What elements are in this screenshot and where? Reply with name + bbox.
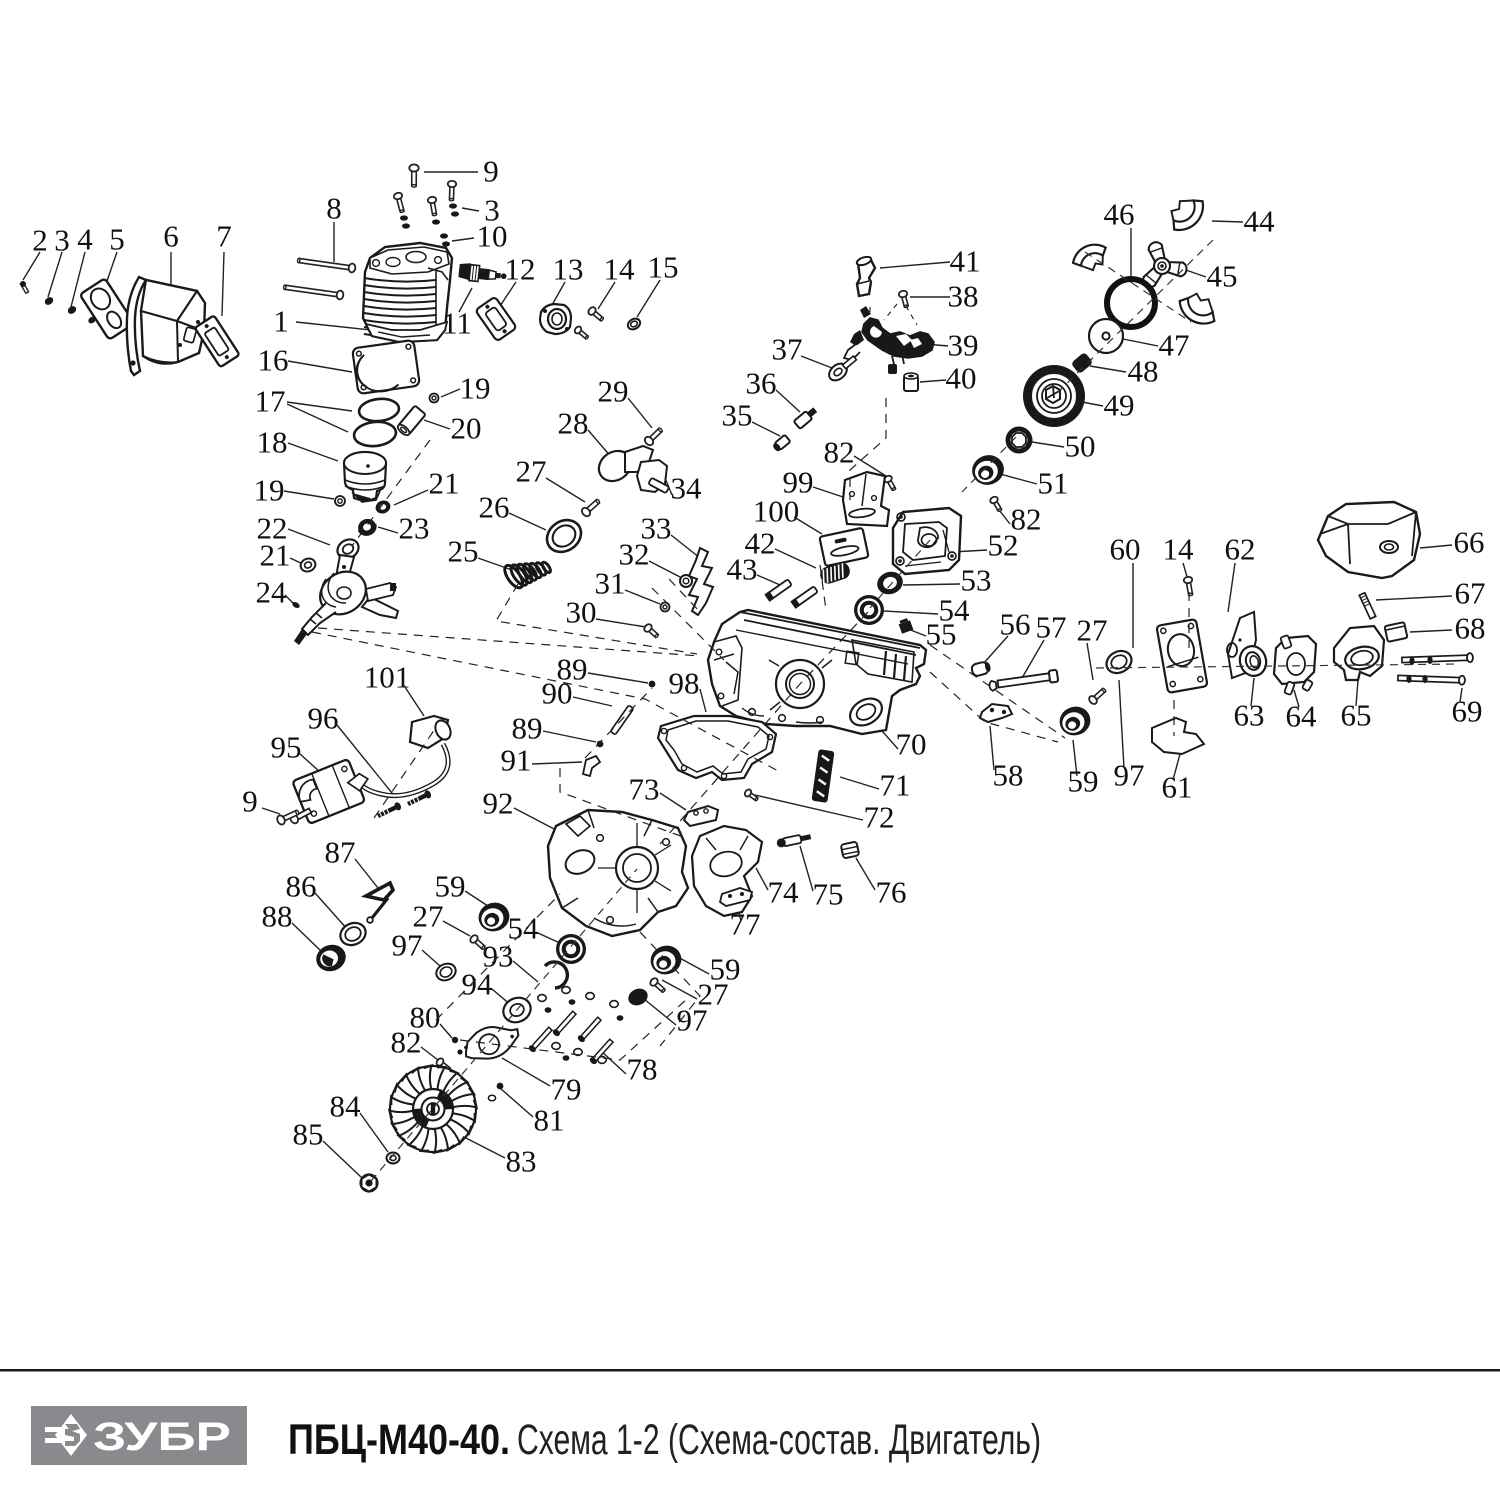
svg-text:ПБЦ-М40-40.: ПБЦ-М40-40. bbox=[288, 1416, 510, 1464]
svg-text:69: 69 bbox=[1452, 694, 1483, 729]
svg-text:15: 15 bbox=[648, 250, 679, 285]
svg-text:7: 7 bbox=[216, 219, 232, 254]
svg-text:68: 68 bbox=[1455, 611, 1486, 646]
svg-text:75: 75 bbox=[813, 877, 844, 912]
svg-text:88: 88 bbox=[262, 899, 293, 934]
svg-text:25: 25 bbox=[448, 534, 479, 569]
svg-text:6: 6 bbox=[163, 219, 179, 254]
svg-text:48: 48 bbox=[1128, 354, 1159, 389]
svg-text:4: 4 bbox=[77, 222, 93, 257]
svg-text:35: 35 bbox=[722, 398, 753, 433]
svg-text:47: 47 bbox=[1159, 328, 1190, 363]
svg-text:64: 64 bbox=[1286, 699, 1318, 734]
svg-text:36: 36 bbox=[746, 366, 777, 401]
svg-text:81: 81 bbox=[534, 1103, 565, 1138]
svg-text:60: 60 bbox=[1110, 532, 1141, 567]
svg-text:84: 84 bbox=[330, 1089, 362, 1124]
svg-text:95: 95 bbox=[271, 730, 302, 765]
svg-text:90: 90 bbox=[542, 676, 573, 711]
svg-text:61: 61 bbox=[1162, 770, 1193, 805]
svg-text:85: 85 bbox=[293, 1117, 324, 1152]
svg-text:82: 82 bbox=[824, 435, 855, 470]
svg-text:26: 26 bbox=[479, 490, 510, 525]
svg-text:82: 82 bbox=[391, 1025, 422, 1060]
svg-text:92: 92 bbox=[483, 786, 514, 821]
svg-text:96: 96 bbox=[308, 701, 339, 736]
svg-text:12: 12 bbox=[505, 252, 536, 287]
svg-text:17: 17 bbox=[255, 384, 286, 419]
svg-text:41: 41 bbox=[950, 244, 981, 279]
svg-text:31: 31 bbox=[595, 566, 626, 601]
svg-text:72: 72 bbox=[864, 800, 895, 835]
svg-text:78: 78 bbox=[627, 1052, 658, 1087]
svg-text:ЗУБР: ЗУБР bbox=[93, 1415, 231, 1459]
svg-text:49: 49 bbox=[1104, 388, 1135, 423]
svg-text:98: 98 bbox=[669, 666, 700, 701]
svg-text:52: 52 bbox=[988, 528, 1019, 563]
svg-text:94: 94 bbox=[462, 967, 494, 1002]
svg-text:20: 20 bbox=[451, 411, 482, 446]
svg-text:62: 62 bbox=[1225, 532, 1256, 567]
svg-text:14: 14 bbox=[604, 252, 636, 287]
svg-text:63: 63 bbox=[1234, 698, 1265, 733]
svg-text:10: 10 bbox=[477, 219, 508, 254]
svg-text:Схема 1-2 (Схема-состав. Двига: Схема 1-2 (Схема-состав. Двигатель) bbox=[517, 1416, 1041, 1464]
svg-text:37: 37 bbox=[772, 332, 803, 367]
svg-text:45: 45 bbox=[1207, 259, 1238, 294]
svg-text:24: 24 bbox=[256, 575, 288, 610]
svg-text:43: 43 bbox=[727, 552, 758, 587]
svg-text:40: 40 bbox=[946, 361, 977, 396]
svg-text:101: 101 bbox=[364, 660, 411, 695]
svg-text:83: 83 bbox=[506, 1144, 537, 1179]
svg-text:21: 21 bbox=[260, 538, 291, 573]
svg-text:27: 27 bbox=[516, 454, 547, 489]
svg-text:79: 79 bbox=[551, 1072, 582, 1107]
svg-text:34: 34 bbox=[671, 471, 703, 506]
svg-text:56: 56 bbox=[1000, 607, 1031, 642]
svg-text:21: 21 bbox=[429, 466, 460, 501]
svg-text:70: 70 bbox=[896, 727, 927, 762]
svg-text:97: 97 bbox=[392, 928, 423, 963]
svg-text:73: 73 bbox=[629, 772, 660, 807]
svg-text:16: 16 bbox=[258, 343, 289, 378]
svg-text:27: 27 bbox=[1077, 613, 1108, 648]
svg-text:91: 91 bbox=[501, 743, 532, 778]
svg-text:14: 14 bbox=[1163, 532, 1195, 567]
svg-text:76: 76 bbox=[876, 875, 907, 910]
svg-text:3: 3 bbox=[54, 223, 70, 258]
svg-text:58: 58 bbox=[993, 758, 1024, 793]
svg-text:1: 1 bbox=[273, 304, 289, 339]
svg-text:38: 38 bbox=[948, 279, 979, 314]
svg-text:13: 13 bbox=[553, 252, 584, 287]
svg-text:87: 87 bbox=[325, 835, 356, 870]
svg-text:50: 50 bbox=[1065, 429, 1096, 464]
svg-text:5: 5 bbox=[109, 222, 125, 257]
svg-text:28: 28 bbox=[558, 406, 589, 441]
svg-text:18: 18 bbox=[257, 425, 288, 460]
svg-text:97: 97 bbox=[1114, 758, 1145, 793]
svg-text:23: 23 bbox=[399, 511, 430, 546]
svg-text:29: 29 bbox=[598, 374, 629, 409]
svg-text:9: 9 bbox=[242, 784, 258, 819]
svg-text:100: 100 bbox=[753, 494, 800, 529]
svg-text:51: 51 bbox=[1038, 466, 1069, 501]
svg-text:9: 9 bbox=[483, 154, 499, 189]
svg-text:8: 8 bbox=[326, 191, 342, 226]
svg-text:2: 2 bbox=[32, 223, 48, 258]
svg-text:74: 74 bbox=[768, 875, 800, 910]
svg-text:71: 71 bbox=[880, 768, 911, 803]
svg-text:19: 19 bbox=[460, 371, 491, 406]
svg-text:44: 44 bbox=[1244, 204, 1276, 239]
svg-text:89: 89 bbox=[512, 711, 543, 746]
svg-text:67: 67 bbox=[1455, 576, 1486, 611]
svg-text:57: 57 bbox=[1036, 610, 1067, 645]
svg-text:30: 30 bbox=[566, 595, 597, 630]
svg-text:59: 59 bbox=[1068, 764, 1099, 799]
svg-text:46: 46 bbox=[1104, 197, 1135, 232]
svg-text:66: 66 bbox=[1454, 525, 1485, 560]
svg-text:19: 19 bbox=[254, 473, 285, 508]
svg-text:55: 55 bbox=[926, 617, 957, 652]
svg-text:39: 39 bbox=[948, 328, 979, 363]
